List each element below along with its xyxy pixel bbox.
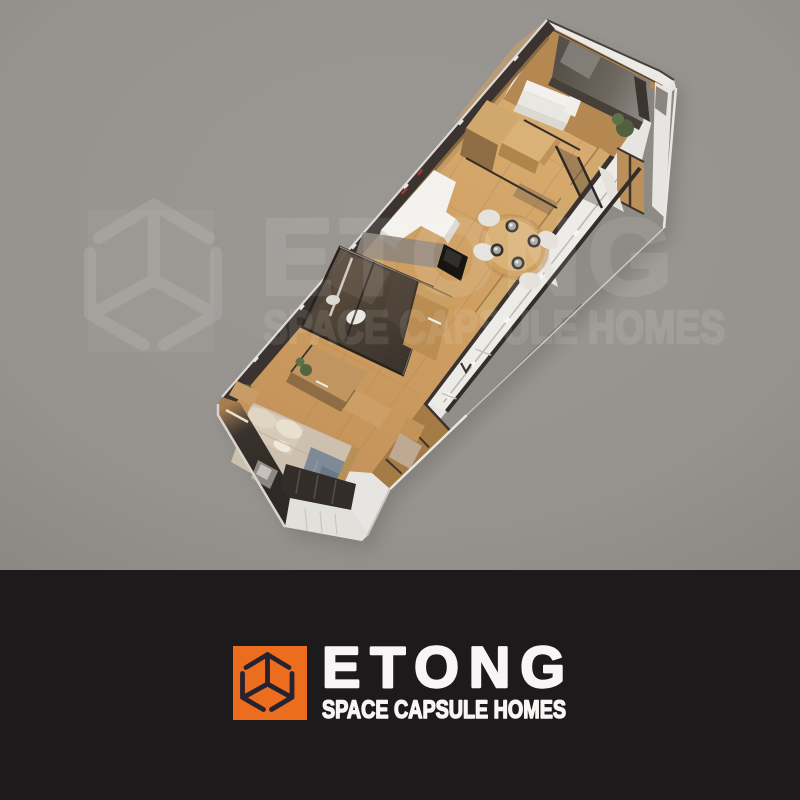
- svg-text:SPACE CAPSULE HOMES: SPACE CAPSULE HOMES: [322, 697, 566, 724]
- svg-text:SPACE CAPSULE HOMES: SPACE CAPSULE HOMES: [263, 301, 725, 353]
- svg-text:ETONG: ETONG: [322, 636, 565, 700]
- svg-text:ETONG: ETONG: [261, 196, 672, 317]
